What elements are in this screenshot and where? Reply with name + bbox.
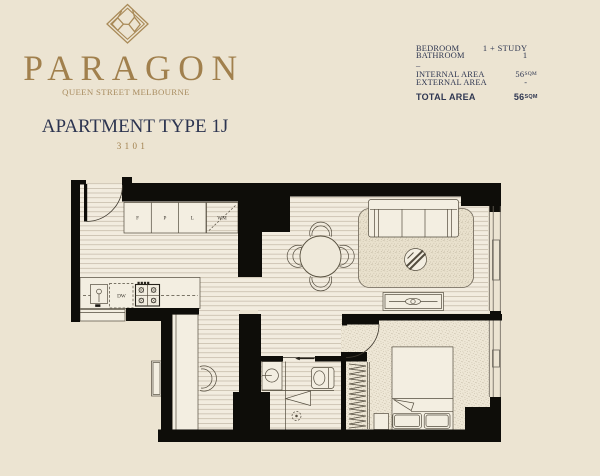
svg-text:DW: DW [117, 294, 126, 300]
svg-text:WM: WM [217, 216, 227, 222]
svg-text:F: F [136, 216, 139, 222]
svg-text:L: L [191, 216, 194, 222]
svg-text:P: P [164, 216, 167, 222]
